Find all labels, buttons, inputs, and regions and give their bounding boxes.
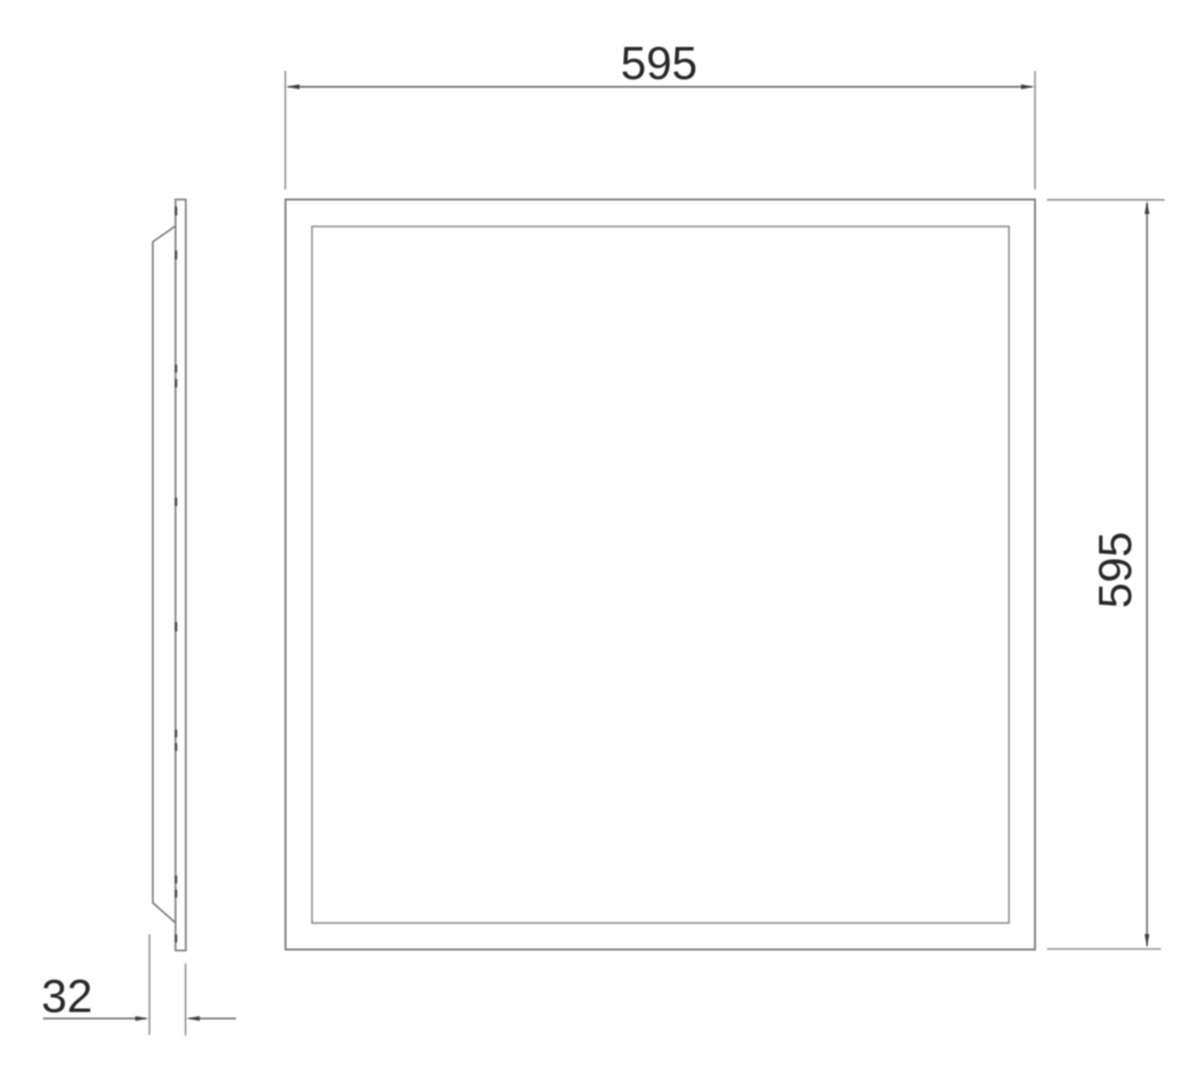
svg-text:595: 595	[621, 37, 698, 89]
svg-text:32: 32	[41, 970, 92, 1022]
svg-text:595: 595	[1089, 532, 1141, 609]
